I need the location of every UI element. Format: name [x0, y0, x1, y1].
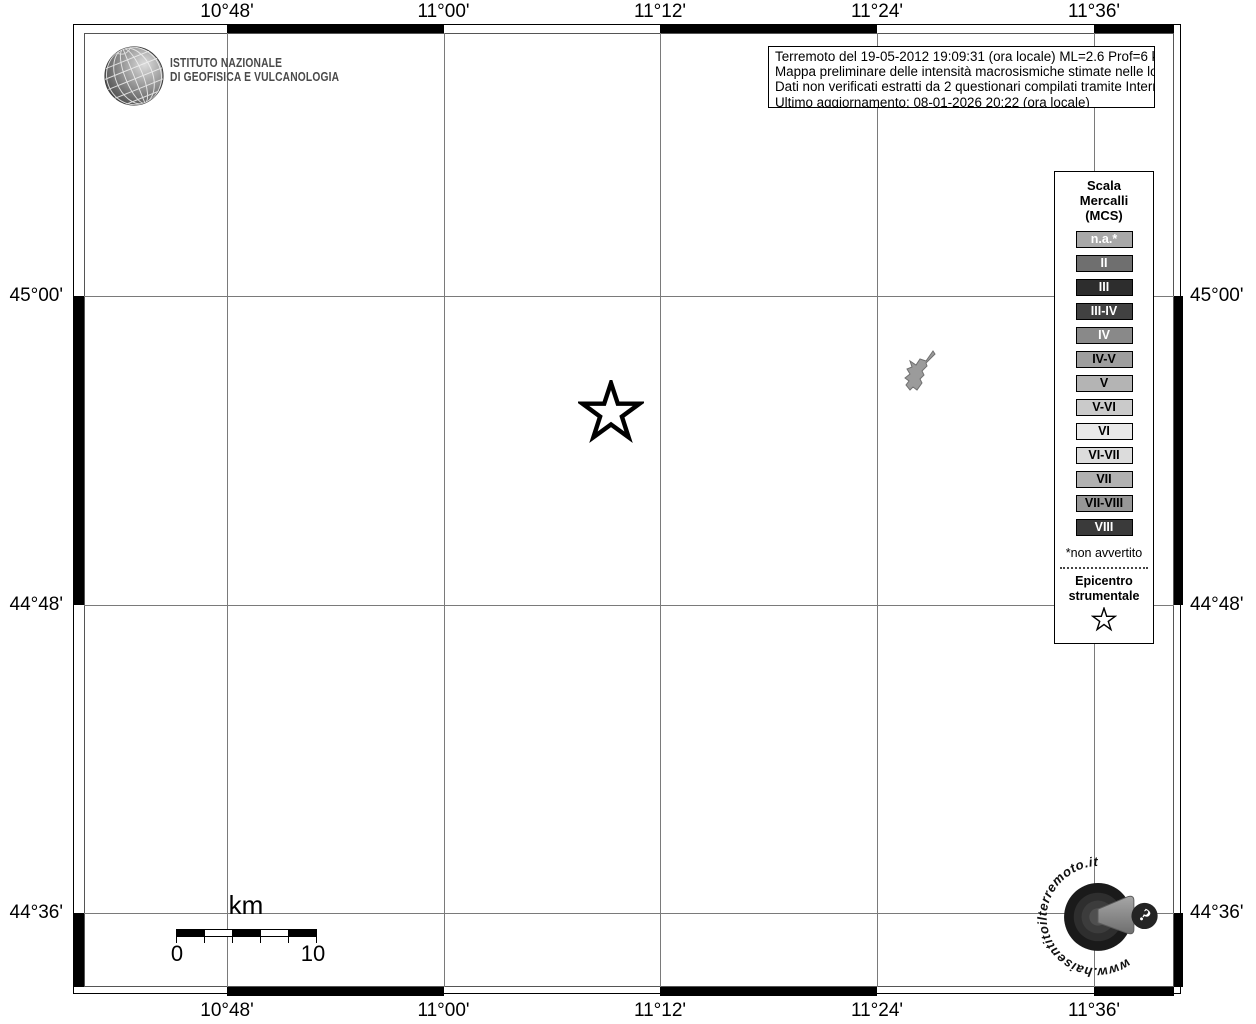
scalebar-tick	[288, 937, 289, 943]
map-canvas: 10°48'11°00'11°12'11°24'11°36'10°48'11°0…	[0, 0, 1256, 1024]
info-box-line: Ultimo aggiornamento: 08-01-2026 20:22 (…	[775, 95, 1154, 108]
scalebar-segment	[232, 929, 261, 937]
earthquake-info-box: Terremoto del 19-05-2012 19:09:31 (ora l…	[768, 46, 1155, 108]
scalebar-tick	[260, 937, 261, 943]
legend-epicenter-line: Epicentro	[1069, 574, 1140, 589]
parallel-gridline	[84, 605, 1174, 606]
scalebar-tick	[232, 937, 233, 943]
axis-label-lon-bottom: 11°36'	[1068, 1000, 1120, 1022]
axis-label-lon-top: 11°00'	[417, 1, 469, 23]
frame-band-right	[1174, 913, 1183, 987]
axis-label-lon-bottom: 11°00'	[417, 1000, 469, 1022]
info-box-line: Mappa preliminare delle intensità macros…	[775, 64, 1154, 79]
scalebar-tick	[204, 937, 205, 943]
legend-swatch-iv: IV	[1076, 327, 1133, 344]
legend-title: ScalaMercalli(MCS)	[1080, 178, 1128, 223]
frame-band-right	[1174, 296, 1183, 605]
info-box-line: Terremoto del 19-05-2012 19:09:31 (ora l…	[775, 49, 1154, 64]
axis-label-lon-top: 11°24'	[851, 1, 903, 23]
axis-label-lon-bottom: 11°24'	[851, 1000, 903, 1022]
legend-separator	[1060, 567, 1148, 569]
legend-title-line: Scala	[1080, 178, 1128, 193]
axis-label-lat-left: 44°36'	[10, 902, 64, 924]
axis-label-lat-right: 44°48'	[1190, 594, 1244, 616]
legend-mcs-scale: ScalaMercalli(MCS) n.a.*IIIIIIII-IVIVIV-…	[1054, 171, 1154, 644]
haisentito-terremoto-badge: www.haisentitoilterremoto.it ?	[1034, 851, 1162, 979]
legend-swatch-viii: VIII	[1076, 519, 1133, 536]
axis-label-lat-right: 44°36'	[1190, 902, 1244, 924]
scalebar-unit-label: km	[229, 890, 264, 921]
legend-swatch-iv-v: IV-V	[1076, 351, 1133, 368]
legend-footnote: *non avvertito	[1066, 546, 1142, 560]
legend-epicenter-title: Epicentrostrumentale	[1069, 574, 1140, 604]
parallel-gridline	[84, 296, 1174, 297]
legend-swatch-ii: II	[1076, 255, 1133, 272]
legend-swatch-vi-vii: VI-VII	[1076, 447, 1133, 464]
ingv-line2: DI GEOFISICA E VULCANOLOGIA	[170, 71, 339, 85]
scalebar-start-label: 0	[171, 941, 183, 967]
scalebar-end-label: 10	[301, 941, 325, 967]
legend-swatch-n-a-: n.a.*	[1076, 231, 1133, 248]
ingv-line1: ISTITUTO NAZIONALE	[170, 57, 339, 71]
ingv-logo-text: ISTITUTO NAZIONALE DI GEOFISICA E VULCAN…	[170, 57, 339, 84]
scalebar-segment	[204, 929, 233, 937]
scalebar-segment	[288, 929, 317, 937]
axis-label-lon-top: 11°12'	[634, 1, 686, 23]
meridian-gridline	[444, 33, 445, 987]
scalebar-segment	[176, 929, 205, 937]
legend-swatch-v-vi: V-VI	[1076, 399, 1133, 416]
legend-swatch-iii-iv: III-IV	[1076, 303, 1133, 320]
frame-band-left	[73, 913, 84, 987]
legend-epicenter-line: strumentale	[1069, 589, 1140, 604]
legend-swatch-vi: VI	[1076, 423, 1133, 440]
frame-band-bottom	[660, 987, 877, 996]
scalebar-segment	[260, 929, 289, 937]
meridian-gridline	[660, 33, 661, 987]
frame-band-top	[660, 24, 877, 33]
legend-swatch-vii-viii: VII-VIII	[1076, 495, 1133, 512]
frame-band-left	[73, 296, 84, 605]
legend-items: n.a.*IIIIIIII-IVIVIV-VVV-VIVIVI-VIIVIIVI…	[1076, 231, 1133, 543]
map-inner-border	[84, 33, 1174, 987]
legend-epicenter-star-icon	[1091, 607, 1117, 633]
axis-label-lon-top: 10°48'	[200, 1, 254, 23]
frame-band-bottom	[1094, 987, 1174, 996]
locality-polygon	[898, 349, 938, 394]
axis-label-lat-left: 44°48'	[10, 594, 64, 616]
legend-swatch-iii: III	[1076, 279, 1133, 296]
legend-title-line: (MCS)	[1080, 208, 1128, 223]
axis-label-lat-right: 45°00'	[1190, 285, 1244, 307]
frame-band-top	[227, 24, 444, 33]
axis-label-lon-top: 11°36'	[1068, 1, 1120, 23]
info-box-line: Dati non verificati estratti da 2 questi…	[775, 79, 1154, 94]
axis-label-lon-bottom: 11°12'	[634, 1000, 686, 1022]
frame-band-bottom	[227, 987, 444, 996]
frame-band-top	[1094, 24, 1174, 33]
legend-swatch-v: V	[1076, 375, 1133, 392]
meridian-gridline	[227, 33, 228, 987]
legend-title-line: Mercalli	[1080, 193, 1128, 208]
ingv-globe-logo-icon	[102, 44, 166, 108]
axis-label-lon-bottom: 10°48'	[200, 1000, 254, 1022]
epicenter-star-icon	[578, 380, 644, 446]
legend-swatch-vii: VII	[1076, 471, 1133, 488]
axis-label-lat-left: 45°00'	[10, 285, 64, 307]
meridian-gridline	[877, 33, 878, 987]
